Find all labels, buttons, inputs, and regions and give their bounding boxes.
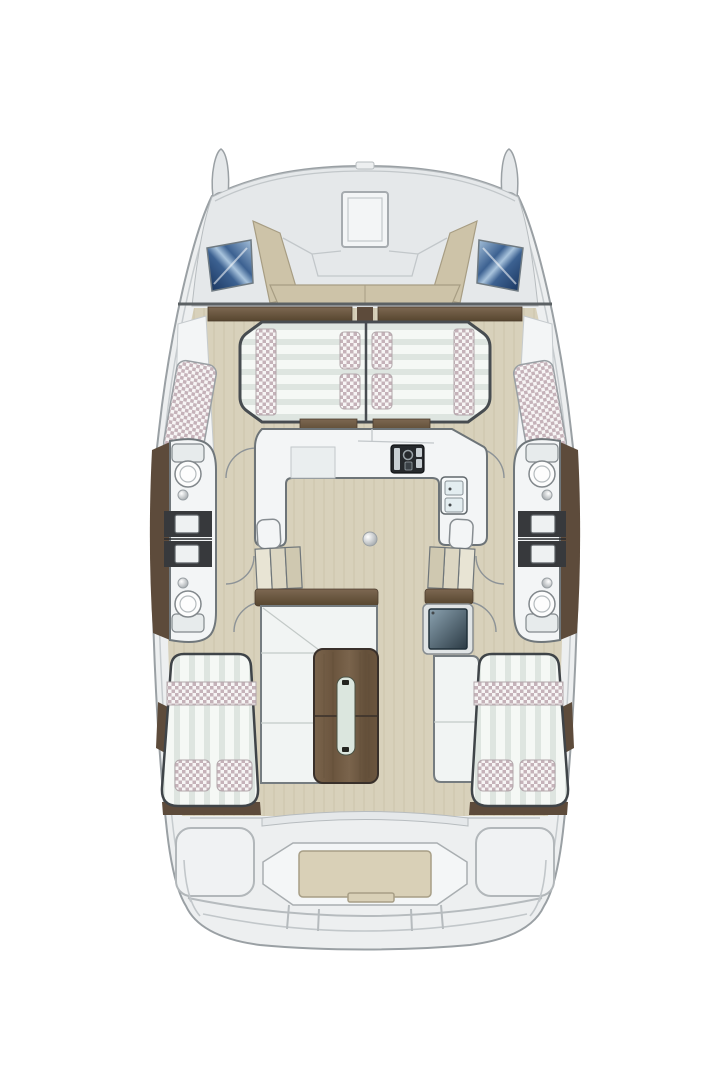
starboard-front-window xyxy=(477,240,523,291)
chart-station-trim xyxy=(425,589,473,604)
bow-fitting xyxy=(356,162,374,169)
sofa-backrest-trim xyxy=(255,589,378,606)
stove xyxy=(391,445,424,473)
starboard-bow-fin xyxy=(501,149,517,197)
forward-double-berth xyxy=(240,322,490,422)
port-forward-shower-control xyxy=(178,490,188,500)
starboard-bathrooms xyxy=(514,439,580,642)
starboard-aft-cabin xyxy=(469,654,574,815)
foredeck-hatch xyxy=(342,192,388,247)
counter-inset-panel xyxy=(291,447,335,478)
galley-sink xyxy=(441,477,467,514)
table-glass-insert xyxy=(337,677,355,755)
berth-pillow-2 xyxy=(340,374,360,409)
salon-dinette xyxy=(255,589,479,783)
port-stair-newel xyxy=(257,519,281,549)
dining-table xyxy=(314,649,378,783)
catamaran-floor-plan: Top-down floor plan diagram of a sailing… xyxy=(0,0,720,1080)
swim-platform xyxy=(263,843,467,905)
mast-post xyxy=(363,532,377,546)
foredeck xyxy=(192,162,538,306)
port-aft-pillow-1 xyxy=(175,760,210,791)
port-aft-cabin xyxy=(156,654,261,815)
port-aft-shower-control xyxy=(178,578,188,588)
port-quilted-runner xyxy=(256,329,276,415)
berth-pillow-1 xyxy=(340,332,360,369)
swim-platform-step-tab xyxy=(348,893,394,902)
berth-pillow-4 xyxy=(372,374,392,409)
port-front-window xyxy=(207,240,253,291)
port-aft-sink xyxy=(164,541,212,567)
starboard-headboard-trim xyxy=(378,307,522,321)
port-aft-pillow-2 xyxy=(217,760,252,791)
port-aft-toilet xyxy=(172,591,204,632)
port-headboard-trim xyxy=(208,307,352,321)
port-bow-fin xyxy=(212,149,228,197)
berth-pillow-3 xyxy=(372,332,392,369)
swim-platform-step xyxy=(299,851,431,897)
port-aft-berth-runner xyxy=(167,682,256,705)
port-bathrooms xyxy=(150,439,216,642)
starboard-quilted-runner xyxy=(454,329,474,415)
floor-plan-page: Top-down floor plan diagram of a sailing… xyxy=(0,0,720,1080)
chart-table xyxy=(423,604,473,654)
port-forward-sink xyxy=(164,511,212,537)
